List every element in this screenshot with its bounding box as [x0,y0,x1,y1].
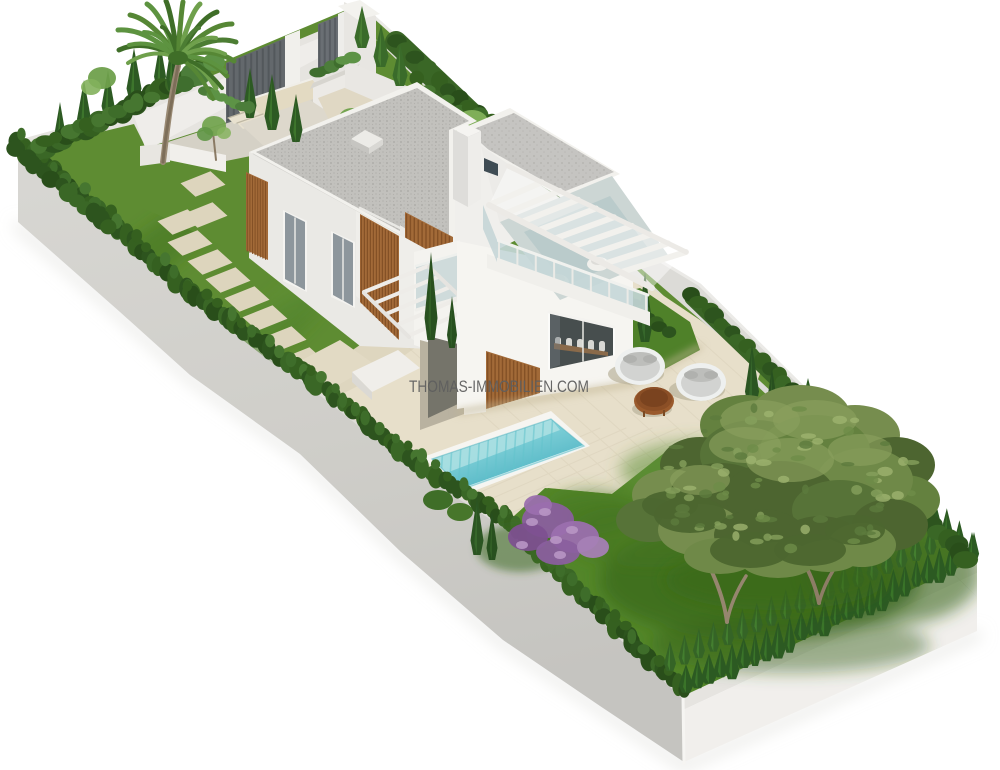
svg-text:THOMAS-IMMOBILIEN.COM: THOMAS-IMMOBILIEN.COM [409,378,589,396]
